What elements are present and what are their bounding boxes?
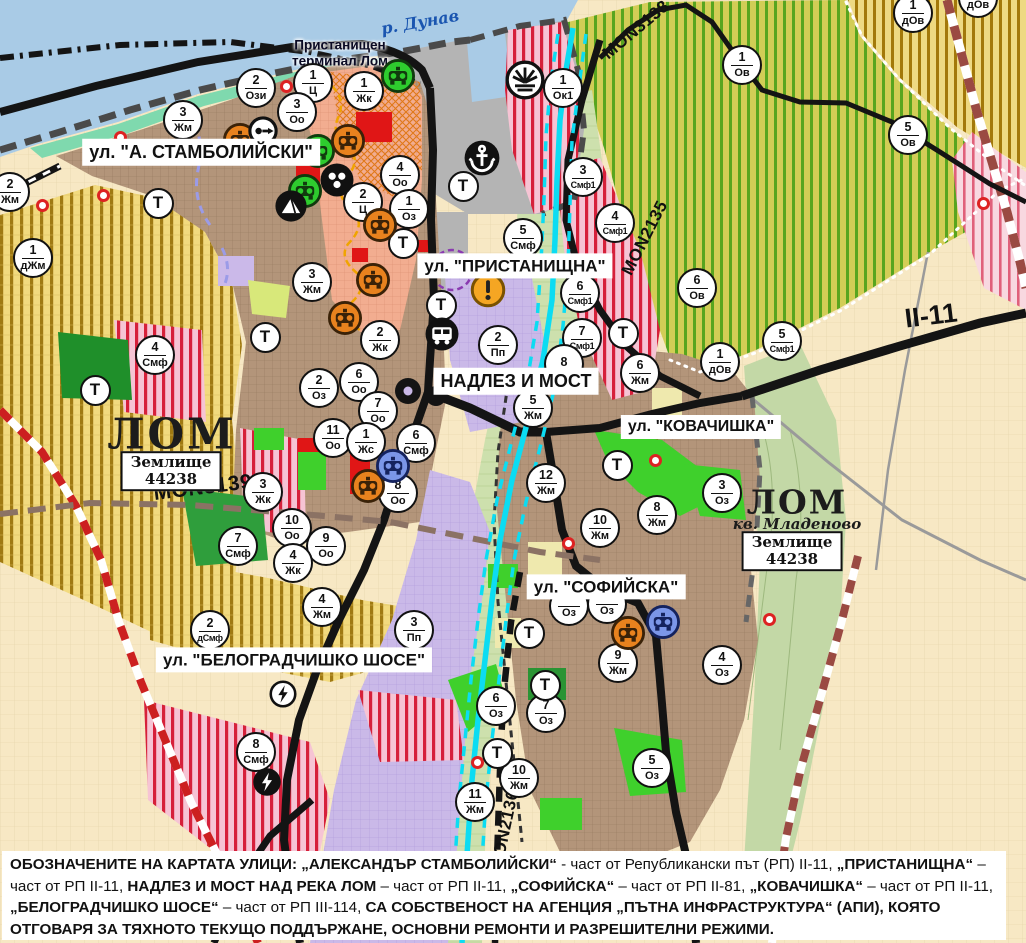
footnote-segment: НАДЛЕЗ И МОСТ НАД РЕКА ЛОМ — [127, 878, 376, 895]
orange-monument-icon — [328, 301, 362, 335]
zone-marker: 2Оз — [299, 368, 339, 408]
zone-marker: 2Ози — [236, 68, 276, 108]
zone-marker: 1дОв — [700, 342, 740, 382]
transformer-marker: Т — [530, 670, 561, 701]
zone-marker: 5Ов — [888, 115, 928, 155]
red-point-marker — [763, 613, 776, 626]
label-line: Землище — [131, 454, 212, 471]
zone-marker: 4Смф1 — [595, 203, 635, 243]
zone-marker: 11Жм — [455, 782, 495, 822]
red-point-marker — [97, 189, 110, 202]
red-point-marker — [562, 537, 575, 550]
zone-marker: 1Жк — [344, 71, 384, 111]
map-footnote: ОБОЗНАЧЕНИТЕ НА КАРТАТА УЛИЦИ: „АЛЕКСАНД… — [2, 851, 1006, 940]
footnote-segment: – част от РП II-11, — [376, 878, 510, 895]
zone-marker: 6Жм — [620, 353, 660, 393]
zone-marker: 7Смф — [218, 526, 258, 566]
zone-marker: 1Ов — [722, 45, 762, 85]
zone-marker: 4Смф — [135, 335, 175, 375]
blue-monument-icon — [646, 605, 680, 639]
zone-marker: 8Жм — [637, 495, 677, 535]
zone-marker: 3Жм — [163, 100, 203, 140]
red-point-marker — [649, 454, 662, 467]
bus-icon — [424, 316, 460, 352]
street-label: ул. "БЕЛОГРАДЧИШКО ШОСЕ" — [156, 647, 432, 672]
road-number-label: II-11 — [903, 297, 959, 334]
footnote-segment: „СОФИЙСКА“ — [511, 878, 615, 895]
zone-marker: 3Жк — [243, 472, 283, 512]
red-point-marker — [36, 199, 49, 212]
footnote-segment: „БЕЛОГРАДЧИШКО ШОСЕ“ — [10, 899, 219, 916]
green-monument-icon — [381, 59, 415, 93]
street-label: ул. "А. СТАМБОЛИЙСКИ" — [82, 139, 320, 166]
orange-monument-icon — [363, 208, 397, 242]
zone-marker: 12Жм — [526, 463, 566, 503]
street-label: ул. "СОФИЙСКА" — [527, 574, 686, 599]
transformer-marker: Т — [514, 618, 545, 649]
zone-marker: 4Жм — [302, 587, 342, 627]
land-parcel-box: Землище44238 — [742, 531, 843, 571]
sunburst-icon — [505, 60, 545, 100]
street-label: ул. "ПРИСТАНИЩНА" — [417, 253, 612, 278]
zone-marker: 4Оз — [702, 645, 742, 685]
zone-marker: 3Оз — [702, 473, 742, 513]
land-parcel-box: Землище44238 — [121, 451, 222, 491]
zone-marker: 3Смф1 — [563, 157, 603, 197]
zone-marker: 6Смф1 — [560, 273, 600, 313]
zone-marker: 3Жм — [292, 262, 332, 302]
red-point-marker — [280, 80, 293, 93]
zone-marker: 6Ов — [677, 268, 717, 308]
people-icon — [319, 162, 355, 198]
orange-monument-icon — [331, 124, 365, 158]
map-stage: 2Ози1Ц1Жк3Оо1Ок11Ов1дОвдОв5Ов2Жм3Жм1дЖм4… — [0, 0, 1026, 943]
transformer-marker: Т — [250, 322, 281, 353]
lightning-icon — [269, 680, 297, 708]
zone-marker: 1Ок1 — [543, 68, 583, 108]
lightning-dark-icon — [252, 767, 282, 797]
label-line: 44238 — [131, 471, 212, 488]
zone-marker: 1дЖм — [13, 238, 53, 278]
zone-marker: 4Жк — [273, 543, 313, 583]
zone-marker: 2Пп — [478, 325, 518, 365]
footnote-segment: „ПРИСТАНИЩНА“ — [837, 856, 973, 873]
zone-marker: 2Жк — [360, 320, 400, 360]
mountain-icon — [274, 189, 308, 223]
transformer-marker: Т — [608, 318, 639, 349]
transformer-marker: Т — [482, 738, 513, 769]
zone-marker: 10Жм — [580, 508, 620, 548]
footnote-segment: - част от Републикански път (РП) II-11, — [557, 856, 837, 873]
zone-marker: 5Смф — [503, 218, 543, 258]
label-line: 44238 — [752, 551, 833, 568]
transformer-marker: Т — [143, 188, 174, 219]
label-line: Пристанищен — [292, 37, 388, 53]
zone-marker: 3Пп — [394, 610, 434, 650]
zone-marker: 5Оз — [632, 748, 672, 788]
footnote-segment: – част от РП III-114, — [219, 899, 366, 916]
footnote-segment: – част от РП II-11, — [863, 878, 993, 895]
footnote-segment: „КОВАЧИШКА“ — [750, 878, 863, 895]
label-line: Землище — [752, 534, 833, 551]
street-label: НАДЛЕЗ И МОСТ — [434, 368, 599, 395]
blue-monument-icon — [376, 449, 410, 483]
red-point-marker — [977, 197, 990, 210]
orange-monument-icon — [611, 616, 645, 650]
zone-marker: 8Смф — [236, 732, 276, 772]
transformer-marker: Т — [602, 450, 633, 481]
footnote-segment: ОБОЗНАЧЕНИТЕ НА КАРТАТА УЛИЦИ: „АЛЕКСАНД… — [10, 856, 557, 873]
zone-marker: 6Оз — [476, 686, 516, 726]
zone-marker: 3Оо — [277, 92, 317, 132]
orange-monument-icon — [356, 263, 390, 297]
street-label: ул. "КОВАЧИШКА" — [621, 415, 781, 439]
anchor-icon — [463, 139, 501, 177]
transformer-marker: Т — [80, 375, 111, 406]
zone-marker: 5Смф1 — [762, 321, 802, 361]
zone-marker: 2дСмф — [190, 610, 230, 650]
footnote-segment: – част от РП II-81, — [614, 878, 749, 895]
